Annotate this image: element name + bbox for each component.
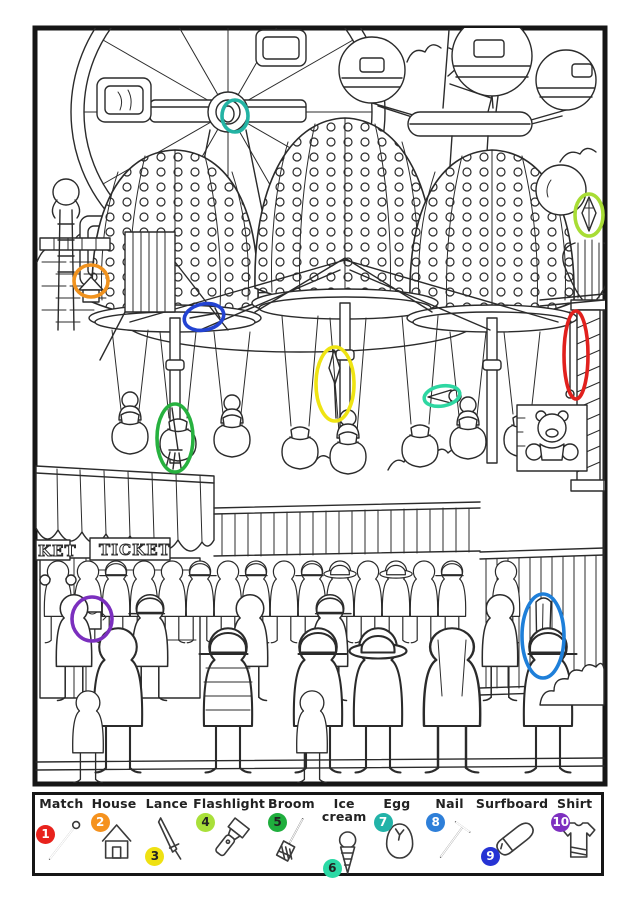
legend-number-badge: 3 xyxy=(145,847,164,866)
legend-label: Egg xyxy=(371,798,424,811)
legend-number-badge: 1 xyxy=(36,825,55,844)
legend-item-surfboard: Surfboard 9 xyxy=(476,795,548,873)
legend-item-broom: Broom 5 xyxy=(265,795,318,873)
legend-item-shirt: Shirt 10 xyxy=(548,795,601,873)
legend-item-nail: Nail 8 xyxy=(423,795,476,873)
ferris-cabin xyxy=(97,78,151,122)
legend-number-badge: 5 xyxy=(268,813,287,832)
legend-label: Ice cream xyxy=(318,798,371,823)
legend-number-badge: 8 xyxy=(426,813,445,832)
legend-item-lance: Lance 3 xyxy=(140,795,193,873)
flashlight-icon xyxy=(210,815,254,865)
legend-label: Lance xyxy=(140,798,193,811)
ferris-cabin xyxy=(256,30,306,66)
balloon-pod xyxy=(452,16,532,96)
scene-illustration: KET TICKET xyxy=(0,0,640,910)
legend-number-badge: 2 xyxy=(91,813,110,832)
legend-number-badge: 10 xyxy=(551,813,570,832)
legend-label: House xyxy=(88,798,141,811)
legend-label: Shirt xyxy=(548,798,601,811)
legend-number-badge: 7 xyxy=(374,813,393,832)
balloon-pod xyxy=(536,50,596,110)
legend-item-egg: Egg 7 xyxy=(371,795,424,873)
puzzle-page: KET TICKET xyxy=(0,0,640,910)
legend-item-house: House 2 xyxy=(88,795,141,873)
legend-label: Surfboard xyxy=(476,798,548,811)
legend-box: Match 1 House 2 Lance 3 xyxy=(32,792,604,876)
legend-label: Nail xyxy=(423,798,476,811)
legend-number-badge: 4 xyxy=(196,813,215,832)
legend-number-badge: 9 xyxy=(481,847,500,866)
teddy-bear-booth xyxy=(517,405,587,471)
balloon-pod xyxy=(339,37,405,103)
legend-item-flashlight: Flashlight 4 xyxy=(193,795,265,873)
legend-label: Match xyxy=(35,798,88,811)
legend-item-match: Match 1 xyxy=(35,795,88,873)
legend-item-ice-cream: Ice cream 6 xyxy=(318,795,371,873)
legend-label: Flashlight xyxy=(193,798,265,811)
ticket-sign-text: TICKET xyxy=(99,541,171,559)
legend-number-badge: 6 xyxy=(323,859,342,878)
legend-label: Broom xyxy=(265,798,318,811)
ticket-sign-left-text: KET xyxy=(38,542,77,560)
